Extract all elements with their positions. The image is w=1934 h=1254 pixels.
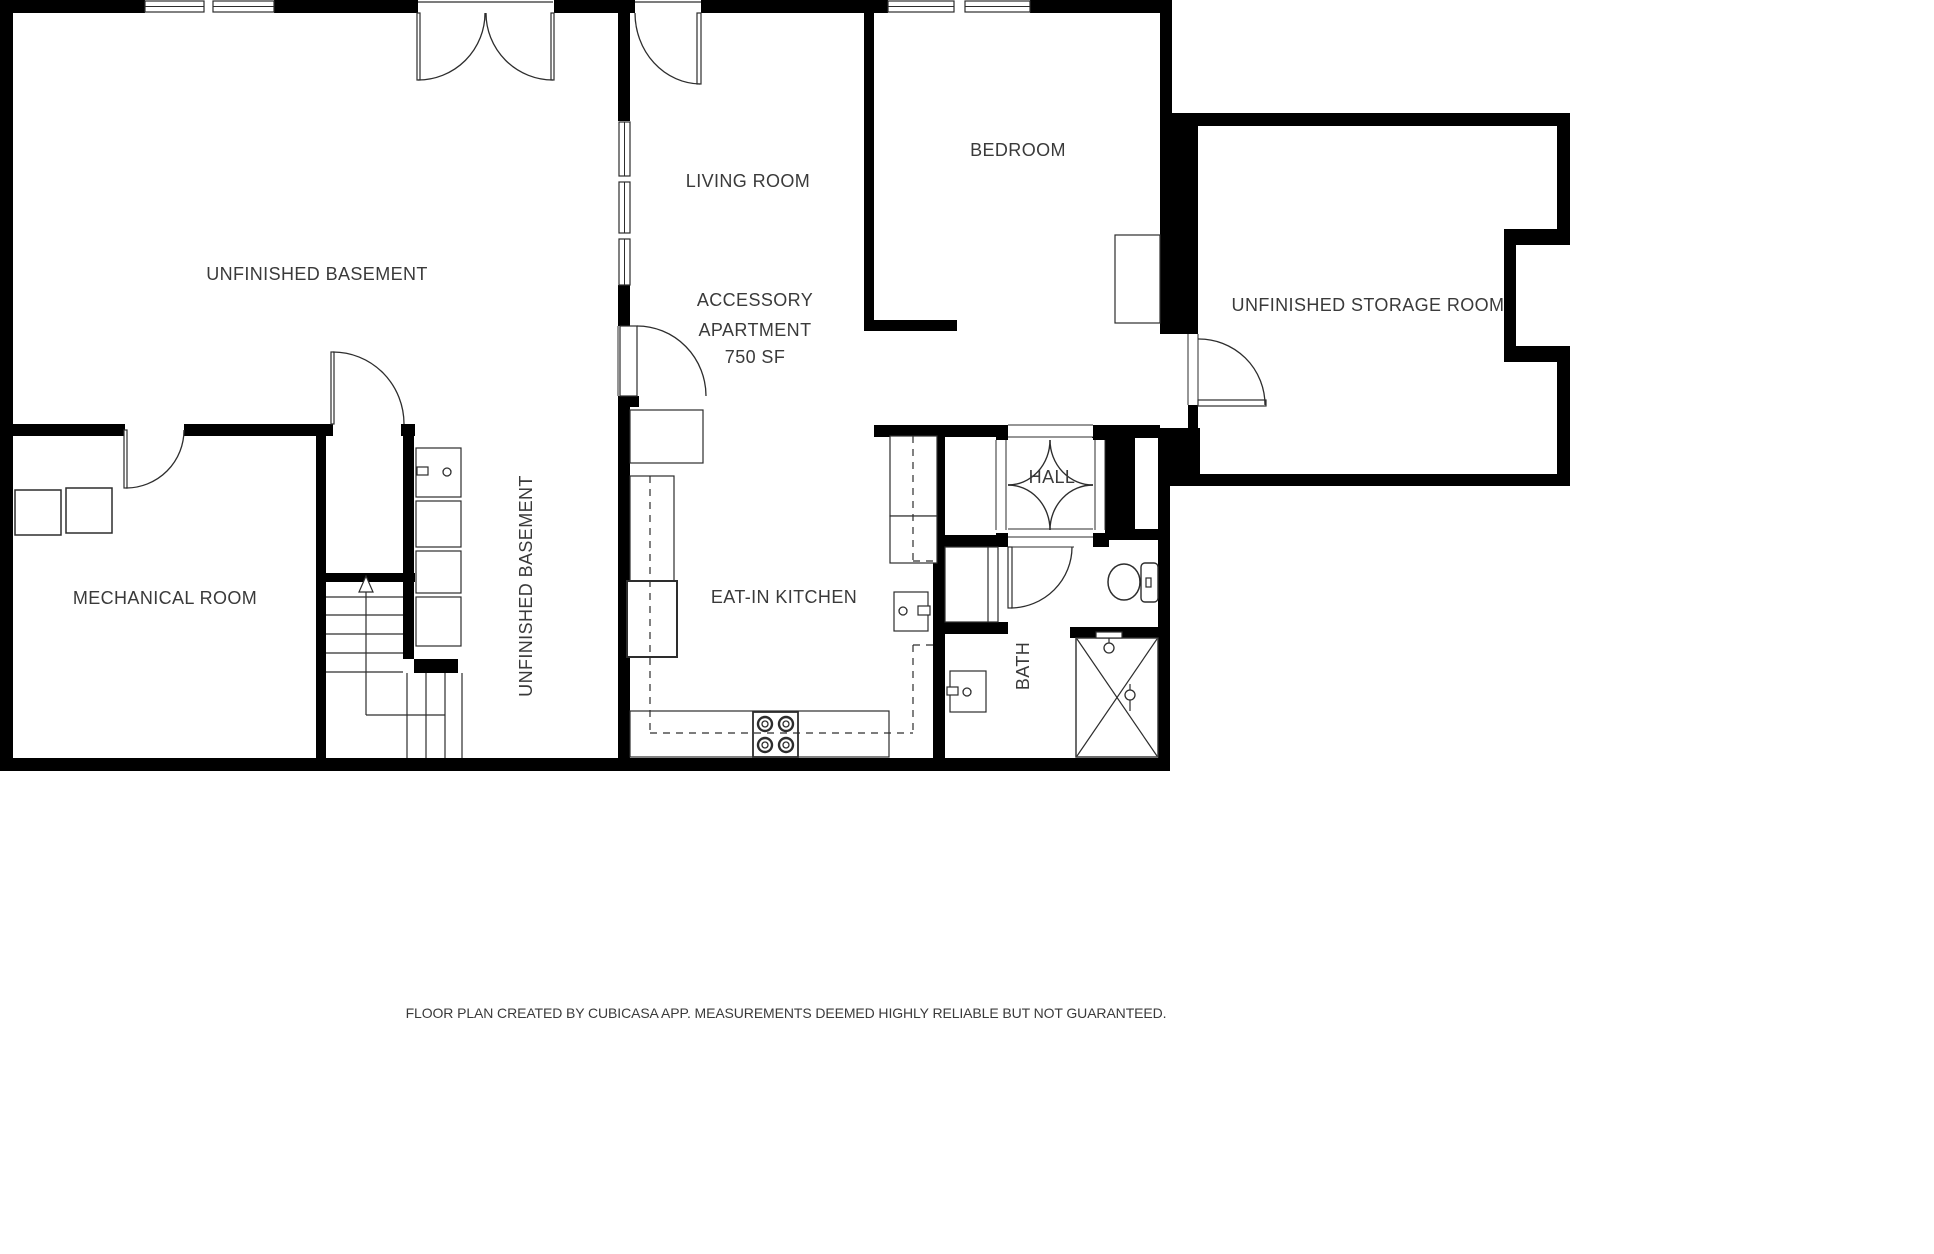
- wall-segment: [1109, 529, 1158, 540]
- wall-segment: [0, 758, 1170, 771]
- door-apartment-panel: [620, 326, 637, 396]
- wall-segment: [1188, 405, 1198, 428]
- wall-segment: [1158, 486, 1170, 758]
- stove-burner-inner: [783, 721, 789, 727]
- room-label-bath: BATH: [1014, 642, 1032, 690]
- wall-segment: [554, 0, 635, 13]
- wall-segment: [403, 424, 414, 659]
- door-storage-swing-arc: [1198, 339, 1265, 405]
- double-door-basement-left-swing-arc: [418, 13, 485, 80]
- wall-segment: [996, 425, 1008, 440]
- wall-segment: [1504, 346, 1570, 362]
- room-label-eat-in-kitchen: EAT-IN KITCHEN: [711, 588, 857, 606]
- footer-disclaimer: FLOOR PLAN CREATED BY CUBICASA APP. MEAS…: [406, 1005, 1167, 1021]
- bath-vanity-handle: [947, 687, 958, 695]
- wall-segment: [1160, 13, 1172, 113]
- opening: [1188, 334, 1198, 405]
- wall-segment: [1158, 428, 1200, 486]
- wall-segment: [1093, 533, 1109, 547]
- door-storage-panel: [1198, 400, 1266, 406]
- wall-segment: [1093, 425, 1105, 440]
- room-label-accessory-apartment-sf: 750 SF: [725, 348, 785, 366]
- room-label-unfinished-basement: UNFINISHED BASEMENT: [206, 265, 428, 283]
- stove-burner-inner: [762, 721, 768, 727]
- wall-segment: [618, 13, 630, 121]
- wall-segment: [0, 424, 125, 436]
- wall-segment: [1557, 362, 1570, 486]
- bedroom-closet: [1115, 235, 1160, 323]
- wall-segment: [316, 424, 326, 758]
- utility-sink-faucet: [443, 468, 451, 476]
- pass-through-box: [630, 410, 703, 463]
- laundry-unit-3: [416, 597, 461, 646]
- bath-vanity-faucet: [963, 688, 971, 696]
- door-living-room-swing-arc: [635, 13, 700, 84]
- wall-segment: [274, 0, 418, 13]
- wall-segment: [1172, 113, 1570, 126]
- wall-segment: [864, 13, 874, 331]
- double-door-basement-right-panel: [551, 13, 554, 80]
- double-door-basement-left-panel: [417, 13, 420, 80]
- opening: [1008, 425, 1093, 437]
- room-label-unfinished-basement-vertical: UNFINISHED BASEMENT: [517, 475, 535, 697]
- door-bath-swing-arc: [1011, 547, 1072, 608]
- opening: [1008, 537, 1074, 547]
- opening: [1095, 440, 1105, 530]
- wall-segment: [937, 622, 1008, 634]
- wall-segment: [0, 0, 13, 771]
- door-apartment-swing-arc: [637, 326, 706, 396]
- mech-equipment-2: [66, 488, 112, 533]
- door-mechanical-swing-arc: [126, 430, 184, 488]
- shower-mixer: [1125, 690, 1135, 700]
- wall-segment: [1198, 474, 1570, 486]
- wall-segment: [1504, 245, 1516, 346]
- wall-segment: [618, 396, 630, 758]
- wall-segment: [1030, 0, 1172, 13]
- mech-equipment-1: [15, 490, 61, 535]
- wall-segment: [943, 535, 1008, 547]
- door-stairs-panel: [331, 352, 334, 424]
- wall-segment: [630, 396, 639, 407]
- toilet-bowl: [1108, 564, 1140, 600]
- kitchen-cabinet-left: [630, 476, 674, 581]
- wall-segment: [326, 424, 333, 436]
- stove-burner-inner: [762, 742, 768, 748]
- wall-segment: [701, 0, 888, 13]
- kitchen-sink-handle: [918, 606, 930, 615]
- room-label-hall: HALL: [1029, 468, 1076, 486]
- wall-segment: [1504, 229, 1570, 245]
- room-label-accessory-apartment-1: ACCESSORY: [697, 291, 813, 309]
- double-door-basement-right-swing-arc: [486, 13, 553, 80]
- kitchen-fridge: [627, 581, 677, 657]
- wall-segment: [184, 424, 326, 436]
- opening: [1008, 529, 1093, 537]
- hall-arch-br: [1050, 485, 1093, 530]
- shower-head: [1104, 643, 1114, 653]
- toilet-button: [1146, 578, 1151, 587]
- laundry-unit-1: [416, 501, 461, 547]
- floor-plan-drawing: [0, 0, 1934, 1254]
- kitchen-sink-faucet: [899, 607, 907, 615]
- hall-arch-bl: [1008, 485, 1050, 530]
- room-label-living-room: LIVING ROOM: [686, 172, 810, 190]
- wall-segment: [0, 0, 145, 13]
- wall-segment: [864, 320, 957, 331]
- floor-plan-page: UNFINISHED BASEMENTLIVING ROOMACCESSORYA…: [0, 0, 1934, 1254]
- room-label-unfinished-storage-room: UNFINISHED STORAGE ROOM: [1232, 296, 1505, 314]
- wall-segment: [1160, 113, 1198, 334]
- shower-head-bar: [1096, 632, 1122, 638]
- stove-burner-inner: [783, 742, 789, 748]
- wall-segment: [1557, 126, 1570, 229]
- wall-segment: [1105, 426, 1135, 533]
- wall-segment: [618, 285, 630, 326]
- door-bath-panel: [1008, 547, 1012, 608]
- door-living-room-panel: [697, 13, 701, 84]
- room-label-mechanical-room: MECHANICAL ROOM: [73, 589, 257, 607]
- utility-sink-handle: [417, 467, 428, 475]
- opening: [996, 440, 1006, 530]
- room-label-accessory-apartment-2: APARTMENT: [699, 321, 812, 339]
- laundry-unit-2: [416, 551, 461, 593]
- wall-segment: [874, 425, 1010, 437]
- bath-niche: [945, 547, 998, 622]
- door-stairs-swing-arc: [333, 352, 404, 424]
- door-mechanical-panel: [124, 430, 127, 488]
- room-label-bedroom: BEDROOM: [970, 141, 1066, 159]
- wall-segment: [414, 659, 458, 673]
